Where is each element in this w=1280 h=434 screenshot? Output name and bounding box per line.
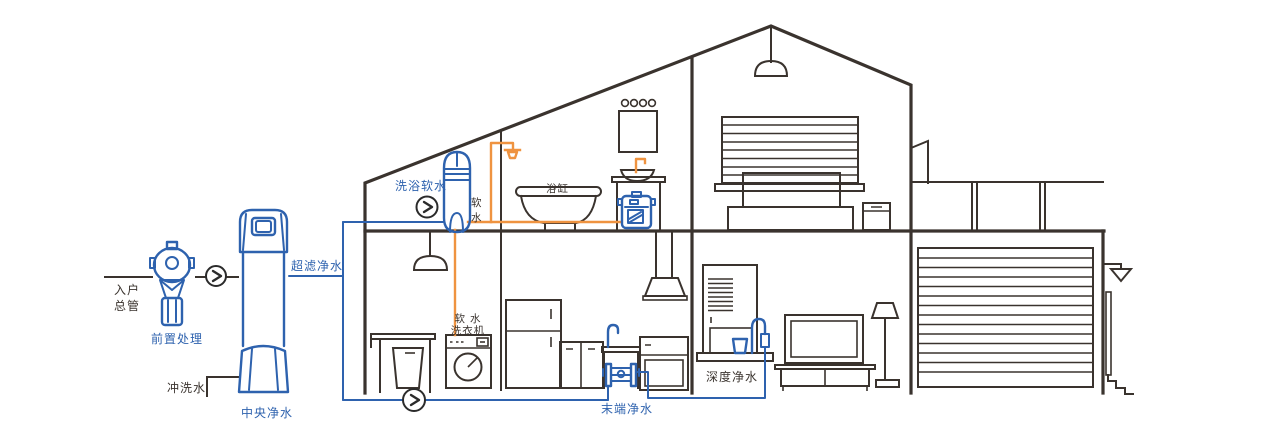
downspout: [1106, 292, 1111, 375]
ceiling-lamp-icon: [414, 256, 447, 270]
diagram-svg: 入户 总管 前置处理 冲洗水 中央净水 超滤净水 洗浴软水 软 水 浴缸 软 水…: [0, 0, 1280, 434]
label-washer-2: 洗衣机: [451, 324, 486, 337]
terminal-purifier-icon: [603, 364, 639, 386]
central-purifier-icon: [239, 210, 288, 392]
label-entry-main-1: 入户: [114, 282, 140, 297]
label-flush-water: 冲洗水: [167, 380, 206, 395]
range-hood: [643, 233, 687, 300]
label-soft-water-2: 水: [471, 212, 483, 224]
laundry-bin: [393, 348, 423, 388]
flush-drain-line: [207, 377, 238, 396]
roof-railing: [911, 141, 1103, 231]
fridge: [506, 300, 561, 388]
pendant-lamp-icon: [755, 61, 787, 76]
outdoor-faucet-icon: [1103, 264, 1131, 281]
label-terminal-purifier: 末端净水: [601, 402, 653, 416]
deep-purifier-faucet-icon: [733, 319, 769, 353]
label-bath-softener: 洗浴软水: [395, 179, 447, 193]
shower-head-icon: [505, 150, 520, 158]
washing-machine: [446, 335, 491, 388]
garage: [911, 141, 1133, 394]
nightstand: [863, 203, 890, 230]
label-central-purifier: 中央净水: [241, 405, 293, 420]
floor-lamp: [872, 303, 899, 387]
cabinets: [560, 342, 603, 388]
under-basin-heater-icon: [618, 192, 655, 228]
kitchen-furniture: [506, 233, 688, 390]
flow-indicator-attic: [417, 197, 438, 218]
side-table: [371, 334, 435, 392]
pre-filter-icon: [150, 242, 194, 325]
label-pre-treatment: 前置处理: [151, 331, 203, 346]
mirror: [619, 100, 657, 152]
label-bathtub: 浴缸: [546, 182, 569, 195]
tv-stand: [775, 365, 875, 391]
bedroom-furniture: [715, 28, 890, 230]
tv: [785, 315, 863, 363]
flow-indicator-ground: [403, 389, 425, 411]
steps: [1108, 375, 1133, 394]
pipes-soft-orange: [455, 143, 645, 335]
label-washer-1: 软 水: [455, 312, 482, 325]
label-soft-water-1: 软: [471, 196, 483, 209]
bath-softener-icon: [444, 152, 470, 232]
label-entry-main-2: 总管: [114, 298, 140, 313]
kitchen-faucet-icon: [608, 325, 618, 347]
water-cup-icon: [733, 339, 747, 353]
flow-indicator-main: [206, 266, 226, 286]
label-uf-water: 超滤净水: [291, 258, 343, 273]
label-deep-purifier: 深度净水: [706, 369, 758, 384]
water-system-diagram: 入户 总管 前置处理 冲洗水 中央净水 超滤净水 洗浴软水 软 水 浴缸 软 水…: [0, 0, 1280, 434]
bed-base: [728, 207, 853, 230]
